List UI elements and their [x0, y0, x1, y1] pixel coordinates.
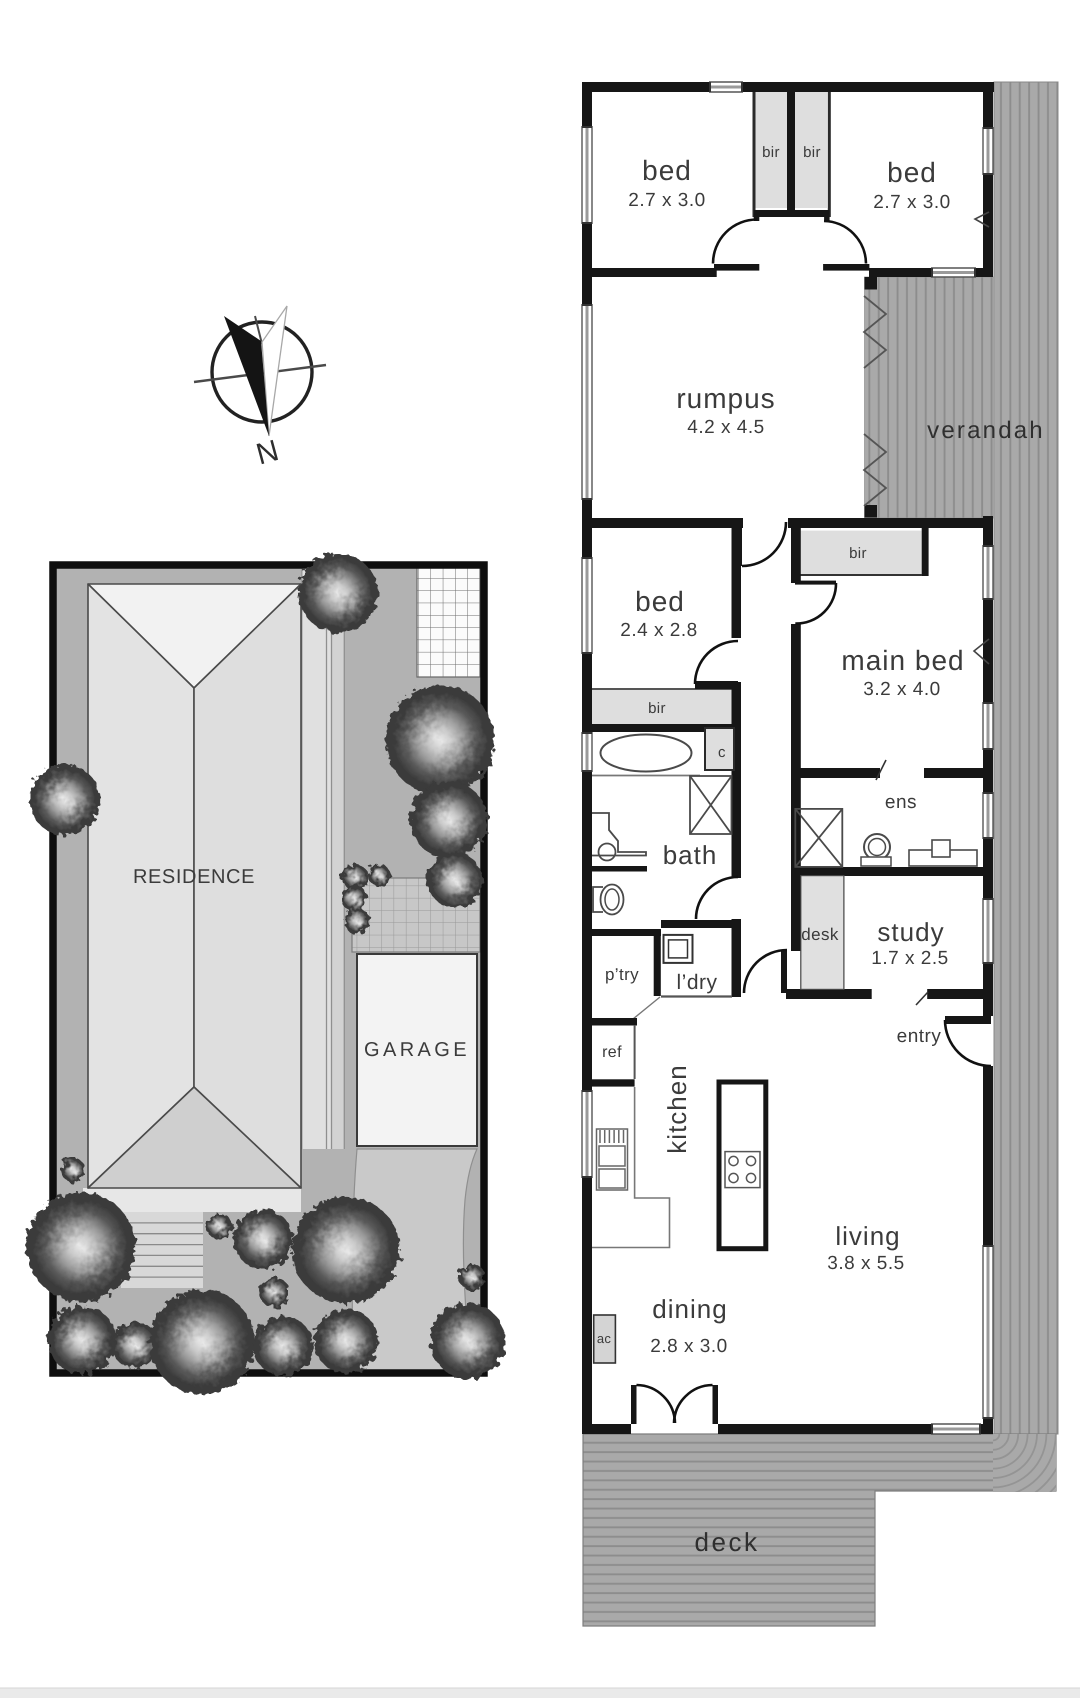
svg-text:ens: ens — [885, 792, 917, 813]
svg-text:1.7 x 2.5: 1.7 x 2.5 — [871, 948, 948, 969]
svg-text:GARAGE: GARAGE — [364, 1039, 470, 1061]
svg-text:RESIDENCE: RESIDENCE — [133, 866, 255, 888]
svg-text:2.7 x 3.0: 2.7 x 3.0 — [873, 192, 950, 213]
svg-text:ac: ac — [597, 1331, 612, 1346]
svg-text:bath: bath — [663, 840, 718, 870]
svg-text:p’try: p’try — [605, 965, 639, 984]
svg-text:rumpus: rumpus — [676, 383, 775, 414]
svg-text:2.8 x 3.0: 2.8 x 3.0 — [650, 1336, 727, 1357]
svg-text:l’dry: l’dry — [676, 971, 717, 994]
svg-text:living: living — [835, 1221, 900, 1251]
svg-text:deck: deck — [695, 1527, 760, 1557]
svg-text:main bed: main bed — [841, 645, 964, 676]
svg-text:4.2 x 4.5: 4.2 x 4.5 — [687, 417, 764, 438]
svg-text:bir: bir — [648, 700, 666, 717]
svg-text:dining: dining — [652, 1294, 727, 1324]
svg-text:entry: entry — [897, 1026, 942, 1047]
svg-text:desk: desk — [801, 925, 839, 944]
svg-text:ref: ref — [602, 1044, 622, 1061]
svg-text:verandah: verandah — [927, 417, 1045, 444]
svg-text:3.8 x 5.5: 3.8 x 5.5 — [827, 1253, 904, 1274]
svg-text:bed: bed — [887, 157, 937, 188]
svg-text:bed: bed — [635, 586, 685, 617]
svg-text:study: study — [877, 917, 944, 947]
svg-text:bir: bir — [762, 144, 780, 161]
svg-text:bed: bed — [642, 155, 692, 186]
svg-text:bir: bir — [849, 545, 867, 562]
svg-text:kitchen: kitchen — [662, 1064, 692, 1153]
svg-text:2.7 x 3.0: 2.7 x 3.0 — [628, 190, 705, 211]
svg-text:bir: bir — [803, 144, 821, 161]
svg-text:3.2 x 4.0: 3.2 x 4.0 — [863, 679, 940, 700]
svg-text:c: c — [718, 744, 726, 761]
svg-text:2.4 x 2.8: 2.4 x 2.8 — [620, 620, 697, 641]
